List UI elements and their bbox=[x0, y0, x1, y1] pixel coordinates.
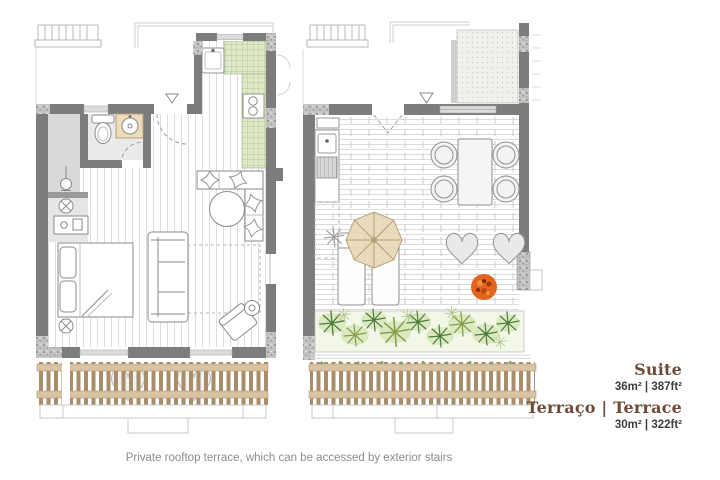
exterior-step bbox=[530, 270, 542, 290]
terrace-area: 30m² | 322ft² bbox=[526, 417, 682, 433]
lower-floor-outline bbox=[40, 405, 266, 433]
terrace-floorplan bbox=[303, 22, 542, 433]
suite-area: 36m² | 387ft² bbox=[526, 379, 682, 395]
neighbour-deck-lines bbox=[532, 35, 541, 100]
outdoor-sink bbox=[318, 134, 336, 153]
side-table bbox=[245, 301, 260, 316]
washer bbox=[59, 199, 73, 213]
figure-caption: Private rooftop terrace, which can be ac… bbox=[0, 452, 578, 464]
terrace-railing bbox=[309, 361, 536, 433]
sofa bbox=[148, 232, 188, 322]
parapet bbox=[451, 40, 457, 103]
terrace-title: Terraço | Terrace bbox=[526, 398, 682, 417]
floorplan-figure: { "legend": { "items": [ { "title": "Sui… bbox=[0, 0, 720, 480]
suite-floorplan bbox=[35, 23, 290, 433]
area-legend: Suite 36m² | 387ft² Terraço | Terrace 30… bbox=[526, 360, 682, 436]
stairs-icon bbox=[35, 25, 101, 47]
skylight-area bbox=[457, 30, 518, 103]
lower-floor-outline bbox=[312, 405, 533, 433]
entry-marker-icon bbox=[166, 94, 178, 103]
round-table bbox=[210, 192, 245, 227]
grill bbox=[317, 157, 337, 178]
bed bbox=[58, 243, 133, 317]
planting-bed bbox=[310, 306, 530, 358]
pouf bbox=[59, 319, 73, 333]
dresser bbox=[54, 216, 88, 234]
stairs-icon bbox=[307, 25, 368, 47]
suite-title: Suite bbox=[526, 360, 682, 379]
balcony bbox=[37, 362, 268, 433]
orange-plant bbox=[471, 274, 497, 300]
bathroom-vanity bbox=[116, 114, 143, 138]
entry-marker-icon bbox=[420, 93, 433, 103]
dining-table bbox=[458, 139, 492, 205]
parasol bbox=[346, 212, 402, 268]
